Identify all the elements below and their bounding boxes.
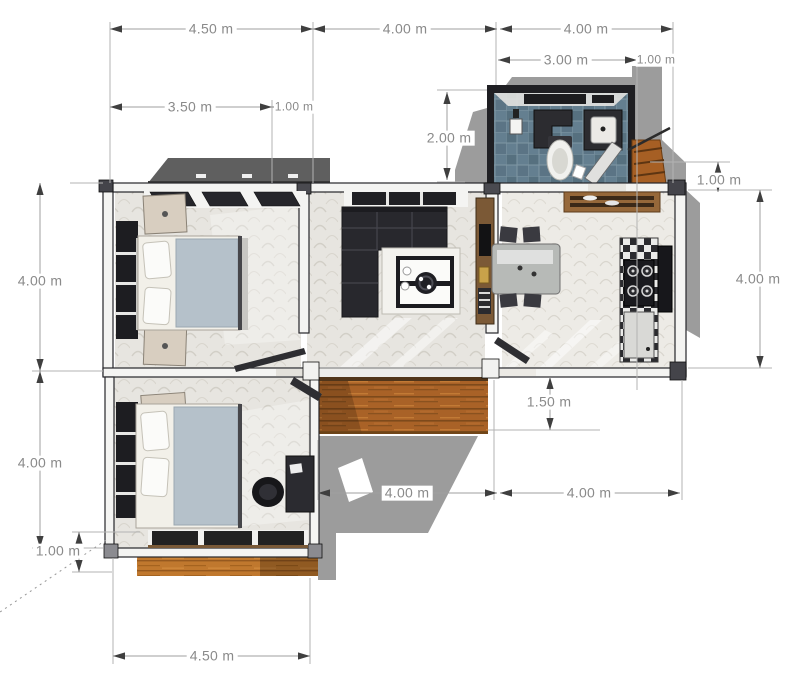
dim-label-left-upper-height: 4.00 m	[15, 274, 66, 289]
dim-label-left-lower-height: 4.00 m	[15, 456, 66, 471]
main-right-wall	[675, 183, 686, 376]
dim-label-bottom-total-width: 4.50 m	[187, 649, 238, 664]
side-window	[116, 221, 138, 339]
dim-label-bedroom1-window-span: 3.50 m	[165, 100, 216, 115]
bed-blanket	[176, 239, 238, 327]
floor-plan-screenshot: 4.50 m 4.00 m 4.00 m 3.00 m 1.00 m 3.50 …	[0, 0, 800, 691]
bed-frame-edge	[238, 236, 242, 330]
tv-icon	[479, 224, 491, 256]
floor-plan-rendering	[0, 0, 800, 691]
coffee-table	[382, 248, 460, 314]
pillow	[141, 457, 170, 497]
pillow	[140, 411, 169, 451]
window-mullion	[420, 192, 423, 205]
dim-label-right-side-height: 4.00 m	[733, 272, 784, 287]
dim-label-bathroom-side-offset: 1.00 m	[636, 54, 677, 67]
dim-label-top-left-width: 4.50 m	[186, 22, 237, 37]
bedroom2-bottom-wall	[105, 548, 319, 557]
shower-head-icon	[513, 109, 519, 118]
dim-label-right-side-offset: 1.00 m	[694, 173, 745, 188]
dining-chair	[523, 293, 541, 307]
kitchen-door-opening	[500, 369, 536, 376]
tall-cabinet	[658, 246, 672, 312]
dining-chair	[499, 226, 517, 243]
main-left-wall	[103, 183, 113, 376]
sofa-back	[342, 207, 447, 212]
dining-chair	[523, 226, 541, 242]
tv-console	[476, 198, 494, 324]
decor-bowl-icon	[415, 272, 437, 294]
paper-icon	[290, 463, 303, 474]
bathroom-left-wall	[487, 85, 494, 183]
window-mullion	[386, 192, 389, 205]
dim-label-bathroom-depth: 2.00 m	[424, 131, 475, 146]
bathroom-shelf	[524, 94, 586, 104]
entry-porch	[137, 556, 318, 576]
bed-frame-edge	[238, 404, 242, 528]
pillow	[143, 287, 171, 325]
toilet-seat	[552, 148, 568, 174]
dim-label-top-middle-width: 4.00 m	[380, 22, 431, 37]
base-cabinet	[624, 312, 654, 358]
dim-label-top-right-width: 4.00 m	[561, 22, 612, 37]
bottom-windows	[148, 530, 308, 548]
living-deck-threshold	[309, 367, 486, 377]
wood-deck	[318, 376, 488, 434]
bed-blanket	[174, 407, 238, 525]
dim-label-bathroom-width: 3.00 m	[541, 53, 592, 68]
decor-vase-icon	[479, 267, 489, 283]
pillow	[142, 241, 171, 279]
wall-cabinet	[510, 119, 522, 134]
bathroom-top-wall	[487, 85, 635, 93]
lamp-icon	[162, 343, 168, 349]
faucet-icon	[601, 127, 606, 132]
top-window	[352, 192, 456, 205]
dim-label-bottom-left-width: 4.00 m	[382, 486, 433, 501]
dim-label-porch-depth: 1.00 m	[33, 544, 84, 559]
bedroom2-left-wall	[105, 377, 114, 556]
lamp-icon	[162, 211, 168, 217]
dining-chair	[499, 293, 517, 308]
dim-label-deck-depth: 1.50 m	[524, 395, 575, 410]
dim-label-bottom-right-width: 4.00 m	[564, 486, 615, 501]
cabinet-handle-icon	[646, 347, 650, 351]
wall-shelf	[564, 192, 660, 212]
dim-label-bedroom1-wall-span: 1.00 m	[274, 101, 315, 114]
side-window	[116, 402, 138, 518]
roof-canopy	[148, 158, 330, 183]
bathroom-mirror	[592, 95, 614, 103]
bathroom-door-opening	[588, 184, 626, 191]
